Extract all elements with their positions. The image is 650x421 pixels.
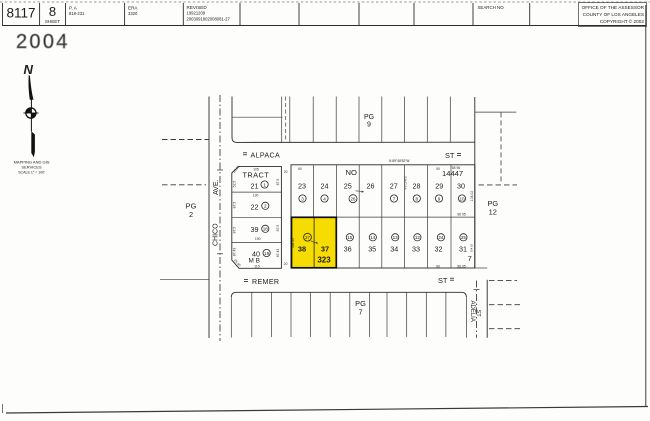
svg-text:60: 60 [298,167,302,171]
svg-text:OFFICE OF THE ASSESSOR: OFFICE OF THE ASSESSOR [582,5,645,10]
svg-text:ST: ST [475,310,481,318]
svg-text:ST: ST [438,276,448,285]
svg-text:8: 8 [416,196,419,201]
svg-text:87.5: 87.5 [276,179,280,186]
svg-text:30: 30 [457,182,465,191]
svg-text:4: 4 [323,196,326,201]
svg-text:52.5: 52.5 [233,181,237,188]
svg-text:19921209: 19921209 [187,11,206,16]
svg-text:25: 25 [461,235,467,240]
svg-text:104.02: 104.02 [470,191,474,201]
svg-text:28: 28 [413,182,421,191]
svg-text:COPYRIGHT © 2002: COPYRIGHT © 2002 [600,18,645,24]
svg-text:58.95: 58.95 [457,264,466,268]
svg-text:8117: 8117 [6,6,35,21]
svg-text:14: 14 [370,235,376,240]
svg-text:19: 19 [264,251,270,256]
svg-text:29: 29 [435,182,443,191]
svg-text:87.5: 87.5 [233,227,237,234]
svg-text:323: 323 [317,256,331,265]
svg-text:2003091802008081-27: 2003091802008081-27 [187,17,231,22]
svg-text:130: 130 [253,194,259,198]
svg-text:13: 13 [393,235,399,240]
svg-text:12: 12 [489,208,497,217]
svg-text:N 89°48′52″W: N 89°48′52″W [389,159,410,163]
svg-text:7: 7 [393,196,396,201]
svg-text:15: 15 [347,235,353,240]
svg-text:190: 190 [255,237,261,241]
svg-text:3320: 3320 [128,11,138,16]
svg-text:87.5: 87.5 [233,202,237,209]
svg-text:ALPACA: ALPACA [251,151,281,159]
svg-text:REVISED: REVISED [187,5,208,10]
svg-text:34: 34 [390,245,398,254]
svg-text:22: 22 [251,203,259,212]
svg-text:105: 105 [253,168,259,172]
svg-text:3: 3 [301,196,304,201]
svg-text:32: 32 [435,245,443,254]
svg-text:TRACT: TRACT [243,171,270,180]
svg-text:27: 27 [390,182,398,191]
svg-text:27: 27 [305,235,311,240]
svg-text:818-231: 818-231 [69,11,85,16]
svg-text:P. A: P. A [69,6,78,11]
svg-text:10: 10 [459,196,465,201]
svg-text:31: 31 [459,245,467,254]
svg-text:115: 115 [254,264,260,268]
svg-text:ADELIA: ADELIA [469,301,475,322]
svg-text:1: 1 [263,182,266,187]
svg-text:20: 20 [284,262,288,266]
svg-text:8: 8 [49,4,56,19]
svg-text:12: 12 [415,235,421,240]
svg-text:20: 20 [284,170,288,174]
svg-text:104.02: 104.02 [470,243,474,251]
svg-text:37: 37 [321,245,329,254]
svg-text:58 95: 58 95 [457,213,466,217]
svg-text:N 0°11′43″E: N 0°11′43″E [404,176,408,190]
svg-text:87.43: 87.43 [276,249,280,258]
svg-text:25: 25 [344,182,352,191]
svg-text:38: 38 [298,245,306,254]
svg-text:87.43: 87.43 [233,248,237,257]
svg-text:7: 7 [468,254,472,263]
svg-text:SERVICES: SERVICES [21,165,41,170]
svg-text:39: 39 [251,225,259,234]
svg-text:2: 2 [264,204,267,209]
svg-text:26: 26 [350,197,356,202]
svg-text:58 96: 58 96 [452,166,461,170]
svg-text:35: 35 [368,245,376,254]
svg-text:24: 24 [321,182,329,191]
svg-text:26: 26 [367,182,375,191]
svg-text:REMER: REMER [252,278,279,286]
svg-text:SCALE 1″ = 100′: SCALE 1″ = 100′ [18,171,45,175]
svg-text:AVE.: AVE. [213,180,220,195]
svg-text:33: 33 [412,245,420,254]
svg-text:ERA: ERA [128,6,138,11]
svg-text:CHICO: CHICO [213,223,220,246]
svg-text:87.5: 87.5 [276,225,280,232]
svg-text:SEARCH NO: SEARCH NO [478,5,505,10]
svg-text:PG: PG [364,114,374,121]
svg-text:14447: 14447 [442,169,463,178]
svg-text:90: 90 [436,167,440,171]
svg-text:24: 24 [438,235,444,240]
svg-text:SHEET: SHEET [45,19,61,24]
svg-text:N: N [24,62,34,77]
svg-text:9: 9 [367,122,371,129]
svg-text:NO: NO [346,168,357,177]
svg-text:104 03: 104 03 [291,238,295,248]
svg-text:COUNTY OF LOS ANGELES: COUNTY OF LOS ANGELES [583,12,644,17]
svg-text:2004: 2004 [16,31,70,53]
svg-text:7: 7 [358,308,362,317]
svg-text:36: 36 [344,245,352,254]
svg-text:2: 2 [189,210,193,219]
svg-text:90: 90 [436,264,440,268]
svg-text:21: 21 [251,182,259,191]
svg-text:23: 23 [298,182,306,191]
svg-text:ST: ST [445,151,455,160]
svg-text:18: 18 [263,227,269,232]
svg-text:9: 9 [438,196,441,201]
